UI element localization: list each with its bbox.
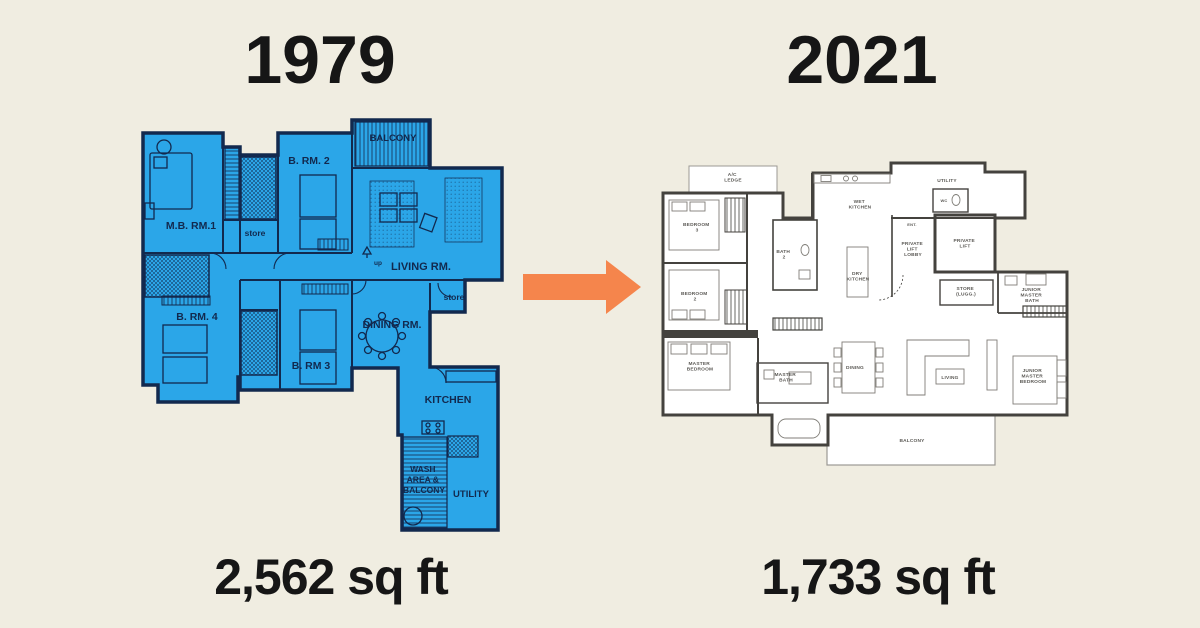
party-wall bbox=[663, 330, 758, 338]
living-rug bbox=[445, 178, 482, 242]
floor-plan-1979: M.B. RM.1 B. RM. 2 BALCONY store LIVING … bbox=[130, 105, 530, 555]
living-rug bbox=[370, 181, 414, 247]
arrow-right-icon bbox=[521, 258, 643, 318]
room-label-dining: DINING RM. bbox=[363, 319, 422, 331]
floor-plan-2021: A/C LEDGE BEDROOM 3 BEDROOM 2 MASTER BED… bbox=[653, 160, 1083, 478]
room-label-balcony: BALCONY bbox=[370, 133, 418, 144]
wardrobe-stripes bbox=[1023, 306, 1067, 317]
room-label-brm3: B. RM 3 bbox=[292, 360, 331, 372]
wardrobe-stripes bbox=[162, 296, 210, 305]
bathroom-hatch bbox=[448, 436, 478, 457]
room-label-store: STORE (LUGG.) bbox=[956, 286, 976, 298]
room-label-mbr: M.B. RM.1 bbox=[166, 220, 216, 232]
wardrobe-stripes bbox=[725, 290, 747, 324]
balcony-stripes bbox=[355, 122, 428, 166]
room-label-kitchen: KITCHEN bbox=[425, 394, 472, 406]
wardrobe-stripes bbox=[725, 198, 745, 232]
area-label-2021: 1,733 sq ft bbox=[761, 552, 995, 602]
wardrobe-stripes bbox=[302, 284, 348, 294]
room-label-junior-master-bedroom: JUNIOR MASTER BEDROOM bbox=[1020, 368, 1046, 385]
room-label-balcony: BALCONY bbox=[899, 438, 925, 444]
room-label-utility: UTILITY bbox=[453, 489, 490, 500]
staircase bbox=[225, 148, 239, 219]
area-label-1979: 2,562 sq ft bbox=[214, 552, 448, 602]
bathroom-hatch bbox=[241, 157, 276, 219]
room-label-store-right: store bbox=[444, 292, 465, 302]
infographic-canvas: 1979 2021 bbox=[0, 0, 1200, 628]
room-label-brm4: B. RM. 4 bbox=[176, 311, 218, 323]
wardrobe-stripes bbox=[773, 318, 822, 330]
room-label-up: up bbox=[374, 260, 382, 267]
room-label-living: LIVING bbox=[941, 375, 958, 381]
room-label-utility: UTILITY bbox=[937, 178, 957, 184]
room-label-living: LIVING RM. bbox=[391, 261, 451, 273]
room-label-store-left: store bbox=[245, 228, 266, 238]
arrow-shape bbox=[523, 260, 641, 314]
year-label-1979: 1979 bbox=[244, 26, 395, 94]
year-label-2021: 2021 bbox=[786, 26, 937, 94]
room-label-master-bedroom: MASTER BEDROOM bbox=[687, 361, 713, 373]
room-label-dining: DINING bbox=[846, 365, 864, 371]
room-label-ent: ENT. bbox=[907, 222, 916, 227]
room-label-brm2: B. RM. 2 bbox=[288, 155, 330, 167]
room-label-wc: WC bbox=[940, 198, 947, 203]
bathroom-hatch bbox=[241, 311, 277, 375]
bathroom-hatch bbox=[145, 255, 209, 297]
